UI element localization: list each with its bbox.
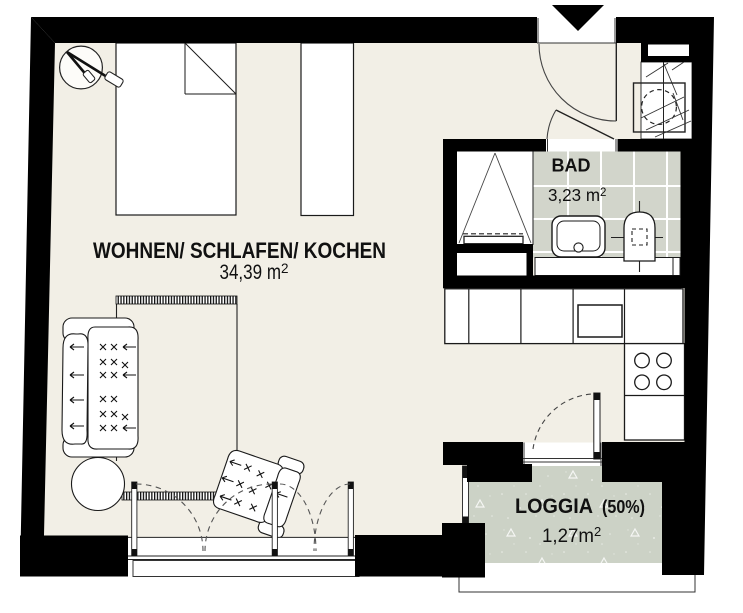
svg-text:BAD: BAD bbox=[552, 156, 591, 176]
svg-text:LOGGIA: LOGGIA bbox=[515, 495, 593, 518]
svg-text:WOHNEN/ SCHLAFEN/ KOCHEN: WOHNEN/ SCHLAFEN/ KOCHEN bbox=[93, 238, 386, 263]
svg-text:3,23 m2: 3,23 m2 bbox=[548, 185, 606, 205]
svg-text:1,27m2: 1,27m2 bbox=[542, 524, 601, 547]
svg-text:(50%): (50%) bbox=[602, 497, 645, 517]
svg-text:34,39 m2: 34,39 m2 bbox=[220, 261, 289, 284]
